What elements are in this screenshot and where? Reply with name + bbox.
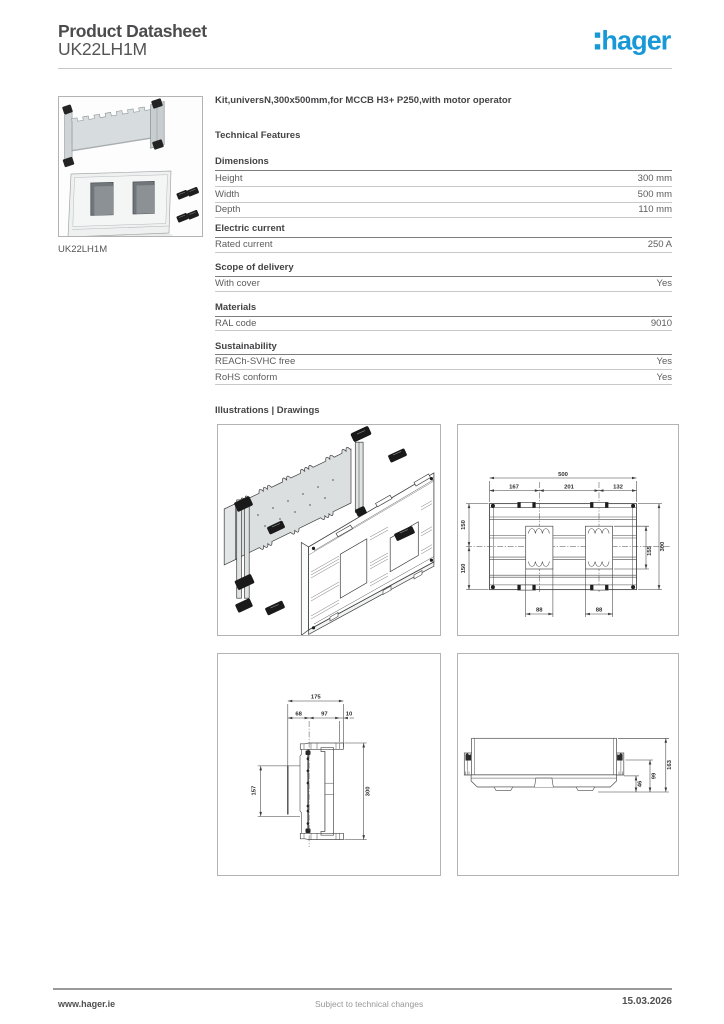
svg-text:175: 175 xyxy=(311,695,322,701)
svg-text:132: 132 xyxy=(613,485,624,491)
svg-text:150: 150 xyxy=(461,519,467,530)
svg-text:201: 201 xyxy=(564,485,575,491)
svg-text:68: 68 xyxy=(295,712,302,718)
svg-text:150: 150 xyxy=(461,563,467,574)
svg-text:88: 88 xyxy=(536,608,543,614)
svg-text:300: 300 xyxy=(366,786,372,797)
svg-text:99: 99 xyxy=(652,772,658,779)
svg-text:46: 46 xyxy=(638,780,644,787)
svg-text:300: 300 xyxy=(660,541,666,552)
svg-text:88: 88 xyxy=(596,608,603,614)
svg-text:10: 10 xyxy=(346,712,353,718)
svg-text:500: 500 xyxy=(558,472,569,478)
svg-text:163: 163 xyxy=(667,759,673,770)
svg-text:157: 157 xyxy=(252,785,258,796)
svg-text:167: 167 xyxy=(509,485,520,491)
svg-text:hager: hager xyxy=(601,26,671,56)
svg-text:155: 155 xyxy=(647,545,653,556)
svg-text:97: 97 xyxy=(321,712,328,718)
